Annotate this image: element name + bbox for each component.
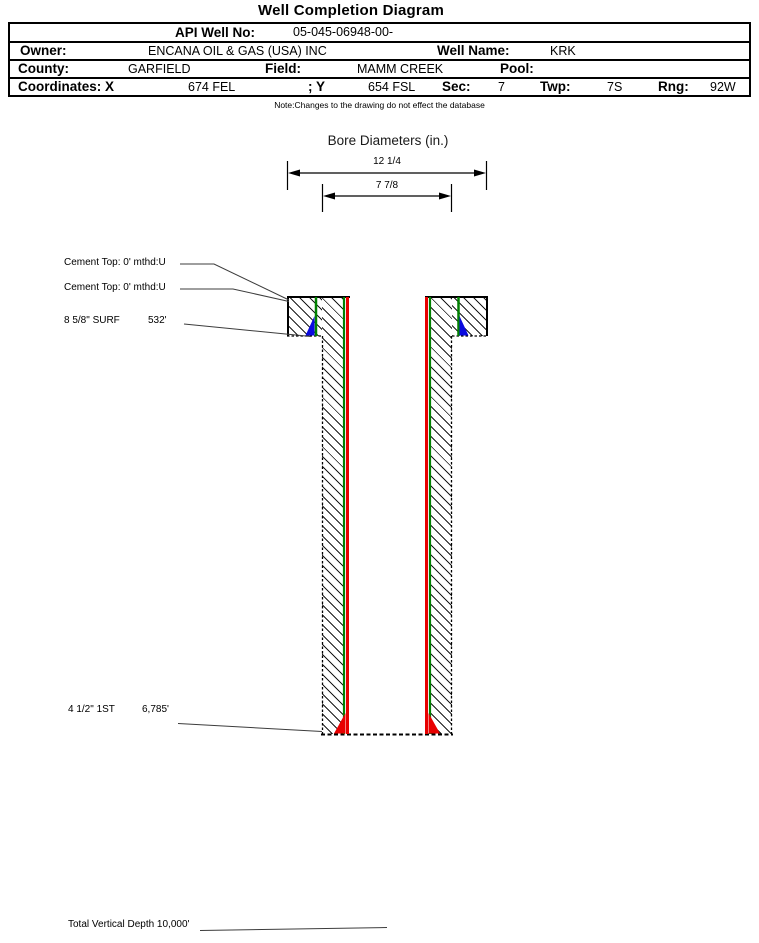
total-vertical-depth-label: Total Vertical Depth 10,000' xyxy=(68,919,189,930)
table-row-api: API Well No: 05-045-06948-00- xyxy=(10,24,749,43)
formation-hatch-surface-right xyxy=(452,297,487,336)
leader-line-production-casing xyxy=(178,724,322,732)
table-row-owner: Owner: ENCANA OIL & GAS (USA) INC Well N… xyxy=(10,43,749,61)
owner-label: Owner: xyxy=(20,43,67,59)
well-name-label: Well Name: xyxy=(437,43,510,59)
leader-line-total-depth xyxy=(200,928,387,931)
formation-hatch-right-column xyxy=(431,297,452,734)
leader-line-cement-top-1 xyxy=(180,264,289,300)
sec-value: 7 xyxy=(498,79,505,95)
coordinates-y-label: ; Y xyxy=(308,79,325,95)
rng-label: Rng: xyxy=(658,79,689,95)
inner-dim-arrowhead-left xyxy=(323,193,335,200)
twp-value: 7S xyxy=(607,79,622,95)
field-value: MAMM CREEK xyxy=(357,61,443,77)
formation-hatch-left-column xyxy=(322,297,344,734)
well-completion-diagram-page: Well Completion Diagram API Well No: 05-… xyxy=(0,0,759,943)
page-title: Well Completion Diagram xyxy=(0,2,702,19)
coordinates-x-value: 674 FEL xyxy=(188,79,235,95)
coordinates-label: Coordinates: X xyxy=(18,79,114,95)
owner-value: ENCANA OIL & GAS (USA) INC xyxy=(148,43,327,59)
well-name-value: KRK xyxy=(550,43,576,59)
formation-hatch-surface-left xyxy=(288,297,322,336)
county-label: County: xyxy=(18,61,69,77)
database-note: Note:Changes to the drawing do not effec… xyxy=(0,100,759,110)
well-header-table: API Well No: 05-045-06948-00- Owner: ENC… xyxy=(8,22,751,97)
outer-dim-arrowhead-right xyxy=(474,170,486,177)
coordinates-y-value: 654 FSL xyxy=(368,79,415,95)
table-row-coordinates: Coordinates: X 674 FEL ; Y 654 FSL Sec: … xyxy=(10,79,749,95)
inner-dim-arrowhead-right xyxy=(439,193,451,200)
api-well-no-label: API Well No: xyxy=(175,24,255,41)
table-row-county: County: GARFIELD Field: MAMM CREEK Pool: xyxy=(10,61,749,79)
outer-bore-diameter-label: 12 1/4 xyxy=(288,156,486,167)
inner-bore-diameter-label: 7 7/8 xyxy=(288,180,486,191)
outer-dim-arrowhead-left xyxy=(288,170,300,177)
api-well-no-value: 05-045-06948-00- xyxy=(293,24,393,41)
county-value: GARFIELD xyxy=(128,61,191,77)
surface-casing-depth: 532' xyxy=(148,315,167,326)
surface-casing-label: 8 5/8" SURF xyxy=(64,315,120,326)
sec-label: Sec: xyxy=(442,79,471,95)
bore-diameters-title: Bore Diameters (in.) xyxy=(288,133,488,148)
leader-line-cement-top-2 xyxy=(180,289,289,302)
production-casing-label: 4 1/2" 1ST xyxy=(68,704,115,715)
twp-label: Twp: xyxy=(540,79,571,95)
field-label: Field: xyxy=(265,61,301,77)
pool-label: Pool: xyxy=(500,61,534,77)
cement-top-annotation-2: Cement Top: 0' mthd:U xyxy=(64,282,166,293)
cement-top-annotation-1: Cement Top: 0' mthd:U xyxy=(64,257,166,268)
production-casing-depth: 6,785' xyxy=(142,704,169,715)
rng-value: 92W xyxy=(710,79,736,95)
